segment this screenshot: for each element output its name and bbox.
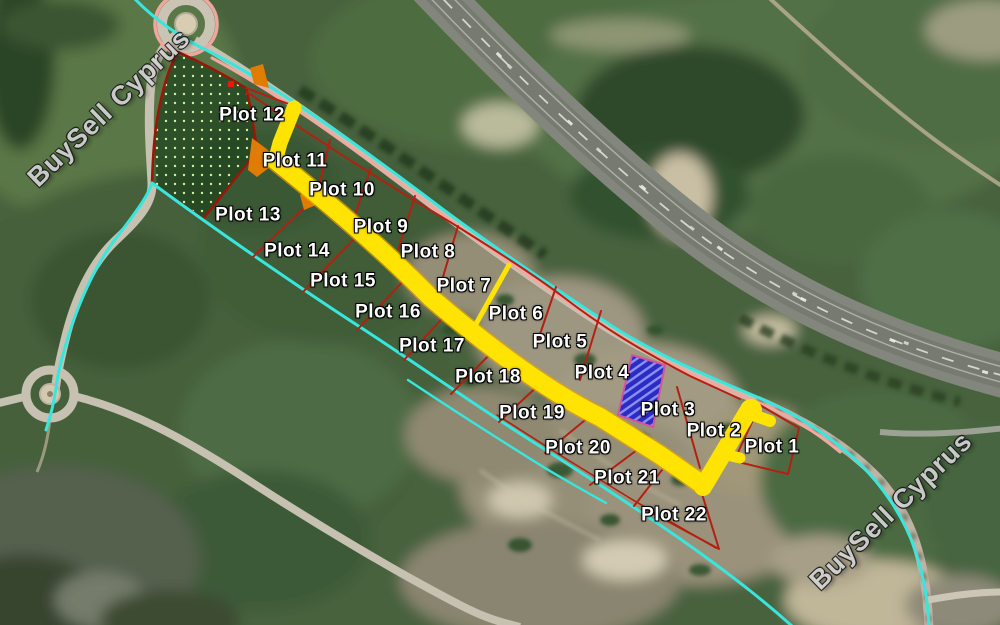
- yellow-side-knob: [727, 455, 740, 458]
- yellow-end-nub: [750, 414, 770, 421]
- red-dot-marker: [228, 81, 234, 87]
- satellite-plot-map: Plot 1Plot 2Plot 3Plot 4Plot 5Plot 6Plot…: [0, 0, 1000, 625]
- map-canvas: [0, 0, 1000, 625]
